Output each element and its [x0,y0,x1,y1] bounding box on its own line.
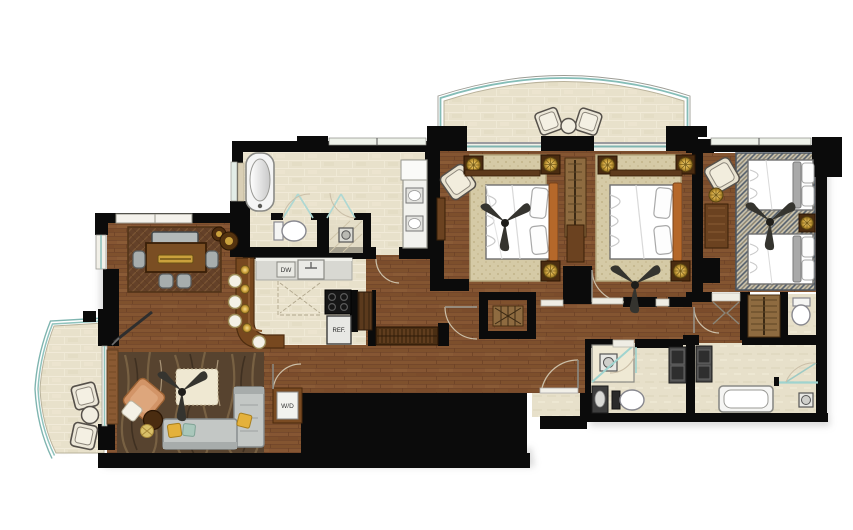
svg-text:DW: DW [281,267,293,274]
svg-text:REF.: REF. [332,328,345,334]
svg-text:W/D: W/D [281,403,294,410]
